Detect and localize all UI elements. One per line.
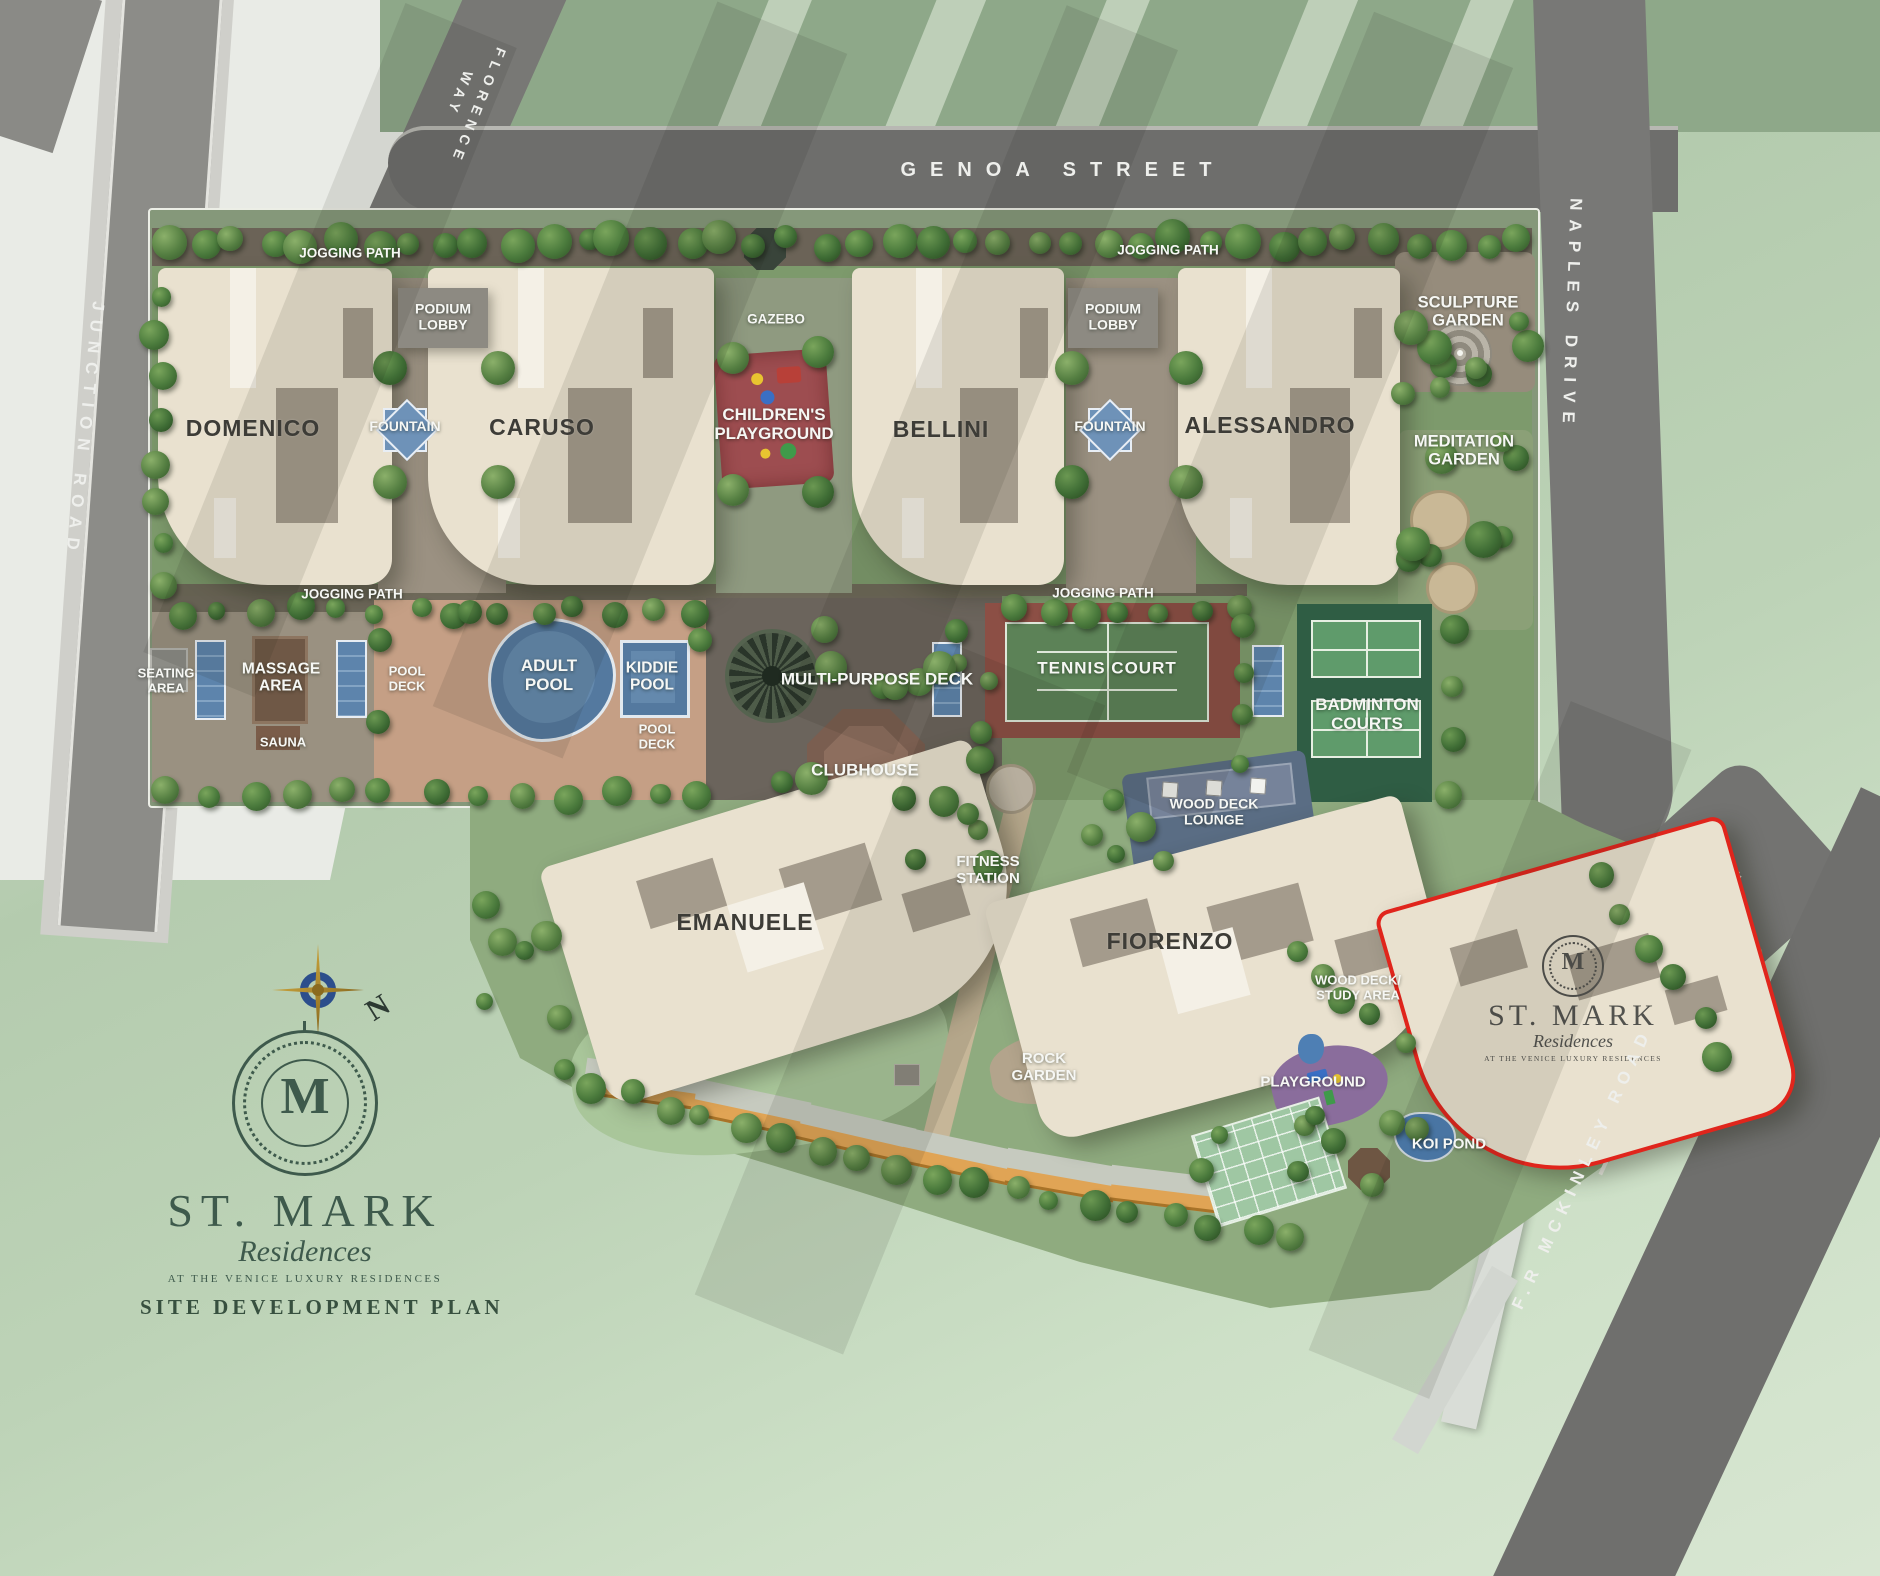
tree-icon [510, 783, 535, 808]
tree-icon [1055, 465, 1089, 499]
tree-icon [1435, 781, 1463, 809]
podium-lobby-label: PODIUM LOBBY [1071, 301, 1156, 332]
tree-icon [1465, 521, 1502, 558]
tree-icon [1153, 851, 1174, 872]
tree-icon [1080, 1190, 1111, 1221]
tree-icon [717, 474, 749, 506]
site-plan: M ST. MARK Residences AT THE VENICE LUXU… [0, 0, 1880, 1576]
legend-monogram: M [235, 1067, 375, 1126]
kiddie-pool-label: KIDDIE POOL [612, 660, 692, 695]
tree-icon [457, 228, 487, 258]
rock-garden-label: ROCK GARDEN [999, 1051, 1089, 1085]
fountain-label: FOUNTAIN [369, 419, 440, 435]
tree-icon [152, 225, 187, 260]
tree-icon [198, 786, 220, 808]
tree-icon [1055, 351, 1089, 385]
tree-icon [602, 776, 632, 806]
tree-icon [1695, 1007, 1717, 1029]
tree-icon [152, 287, 172, 307]
legend-script: Residences [140, 1235, 470, 1269]
childrens-playground-label: CHILDREN'S PLAYGROUND [687, 405, 862, 443]
tree-icon [1211, 1126, 1229, 1144]
jogging-path-label: JOGGING PATH [1052, 585, 1154, 600]
multi-purpose-deck-label: MULTI-PURPOSE DECK [777, 669, 977, 688]
tree-icon [923, 1165, 952, 1194]
tree-icon [1660, 964, 1686, 990]
building-label-domenico: DOMENICO [186, 416, 321, 442]
tree-icon [682, 781, 711, 810]
koi-pond-label: KOI POND [1412, 1137, 1486, 1154]
tree-icon [1305, 1106, 1324, 1125]
jogging-path-label: JOGGING PATH [301, 586, 403, 601]
tree-icon [1244, 1215, 1274, 1245]
tree-icon [1512, 330, 1544, 362]
tree-icon [959, 1167, 990, 1198]
tree-icon [412, 598, 431, 617]
tree-icon [1072, 600, 1101, 629]
tennis-court-label: TENNIS COURT [1037, 658, 1177, 677]
tree-icon [142, 488, 169, 515]
building-label-bellini: BELLINI [893, 417, 989, 443]
tree-icon [689, 1105, 709, 1125]
tree-icon [1391, 382, 1415, 406]
pool-deck-label: POOL DECK [377, 664, 437, 693]
wood-deck-study-label: WOOD DECK/ STUDY AREA [1311, 973, 1406, 1002]
tree-icon [1126, 812, 1155, 841]
tree-icon [329, 777, 354, 802]
tree-icon [1116, 1201, 1138, 1223]
tree-icon [1441, 727, 1466, 752]
tree-icon [1001, 594, 1027, 620]
tree-icon [366, 710, 390, 734]
tree-icon [481, 351, 515, 385]
playground-label: PLAYGROUND [1260, 1075, 1365, 1092]
jogging-path-label: JOGGING PATH [299, 245, 401, 260]
tree-icon [771, 771, 793, 793]
fountain-label: FOUNTAIN [1074, 419, 1145, 435]
tree-icon [1396, 527, 1430, 561]
legend-tagline: AT THE VENICE LUXURY RESIDENCES [140, 1273, 470, 1285]
gazebo-label: GAZEBO [747, 311, 805, 326]
building-label-alessandro: ALESSANDRO [1184, 413, 1355, 439]
tree-icon [1321, 1128, 1346, 1153]
tree-icon [1276, 1223, 1304, 1251]
tree-icon [141, 451, 170, 480]
podium-lobby-label: PODIUM LOBBY [401, 301, 486, 332]
tree-icon [1007, 1176, 1030, 1199]
tree-icon [1189, 1158, 1214, 1183]
tree-icon [1396, 1033, 1416, 1053]
legend-name: ST. MARK [140, 1184, 470, 1237]
tree-icon [621, 1079, 646, 1104]
tree-icon [1041, 599, 1068, 626]
building-label-emanuele: EMANUELE [676, 910, 813, 936]
tree-icon [1478, 235, 1502, 259]
tree-icon [1107, 845, 1125, 863]
tree-icon [1359, 1003, 1380, 1024]
tree-icon [149, 362, 177, 390]
tree-icon [1440, 615, 1469, 644]
tree-icon [468, 786, 488, 806]
tree-icon [1502, 224, 1530, 252]
tree-icon [531, 921, 562, 952]
tree-icon [373, 465, 407, 499]
tree-icon [481, 465, 515, 499]
tree-icon [368, 628, 392, 652]
tree-icon [537, 224, 572, 259]
tree-icon [217, 226, 242, 251]
tree-icon [472, 891, 500, 919]
tree-icon [1430, 377, 1450, 397]
tree-icon [814, 234, 842, 262]
badminton-courts-label: BADMINTON COURTS [1300, 695, 1435, 733]
tree-icon [1635, 935, 1663, 963]
compass-icon [278, 950, 358, 1030]
meditation-garden-label: MEDITATION GARDEN [1392, 433, 1537, 470]
building-label-caruso: CARUSO [489, 415, 595, 441]
tree-icon [515, 941, 534, 960]
wood-deck-lounge-label: WOOD DECK LOUNGE [1154, 796, 1274, 827]
tree-icon [151, 776, 179, 804]
tree-icon [554, 785, 583, 814]
tree-icon [650, 784, 670, 804]
tree-icon [802, 476, 834, 508]
genoa-street-label: GENOA STREET [900, 159, 1225, 181]
tree-icon [1287, 941, 1308, 962]
legend-plan-title: SITE DEVELOPMENT PLAN [140, 1295, 470, 1320]
tree-icon [283, 780, 312, 809]
tree-icon [154, 533, 173, 552]
tree-icon [681, 600, 709, 628]
tree-icon [1107, 602, 1128, 623]
tree-icon [657, 1097, 685, 1125]
tree-icon [424, 779, 450, 805]
tree-icon [554, 1059, 575, 1080]
tree-icon [242, 782, 272, 812]
tree-icon [1169, 351, 1203, 385]
adult-pool-label: ADULT POOL [507, 656, 592, 694]
sauna-label: SAUNA [260, 736, 306, 751]
tree-icon [1225, 224, 1261, 260]
sculpture-garden-label: SCULPTURE GARDEN [1398, 294, 1538, 331]
tree-icon [1039, 1191, 1058, 1210]
legend-logo: M ST. MARK Residences AT THE VENICE LUXU… [140, 1030, 470, 1310]
tree-icon [149, 408, 173, 432]
tree-icon [1441, 676, 1462, 697]
pool-deck-label: POOL DECK [627, 722, 687, 751]
clubhouse-label: CLUBHOUSE [811, 760, 919, 779]
tree-icon [488, 928, 516, 956]
tree-icon [1702, 1042, 1732, 1072]
tree-icon [688, 628, 712, 652]
tree-icon [501, 229, 535, 263]
tree-icon [1164, 1203, 1188, 1227]
seating-area-label: SEATING AREA [126, 666, 206, 695]
tree-icon [476, 993, 493, 1010]
tree-icon [1287, 1161, 1308, 1182]
tree-icon [883, 224, 917, 258]
building-label-fiorenzo: FIORENZO [1107, 929, 1234, 955]
tree-icon [365, 778, 390, 803]
tree-icon [917, 226, 950, 259]
massage-area-label: MASSAGE AREA [229, 661, 334, 696]
fitness-station-label: FITNESS STATION [941, 854, 1036, 888]
tree-icon [802, 336, 834, 368]
tree-icon [774, 225, 797, 248]
legend-medallion-icon: M [232, 1030, 378, 1176]
tree-icon [365, 605, 383, 623]
tree-icon [576, 1073, 606, 1103]
tree-icon [845, 230, 872, 257]
jogging-path-label: JOGGING PATH [1117, 242, 1219, 257]
tree-icon [1194, 1215, 1221, 1242]
tree-icon [945, 619, 969, 643]
tree-icon [642, 598, 665, 621]
tree-icon [1081, 824, 1103, 846]
tree-icon [547, 1005, 572, 1030]
tree-icon [139, 320, 169, 350]
